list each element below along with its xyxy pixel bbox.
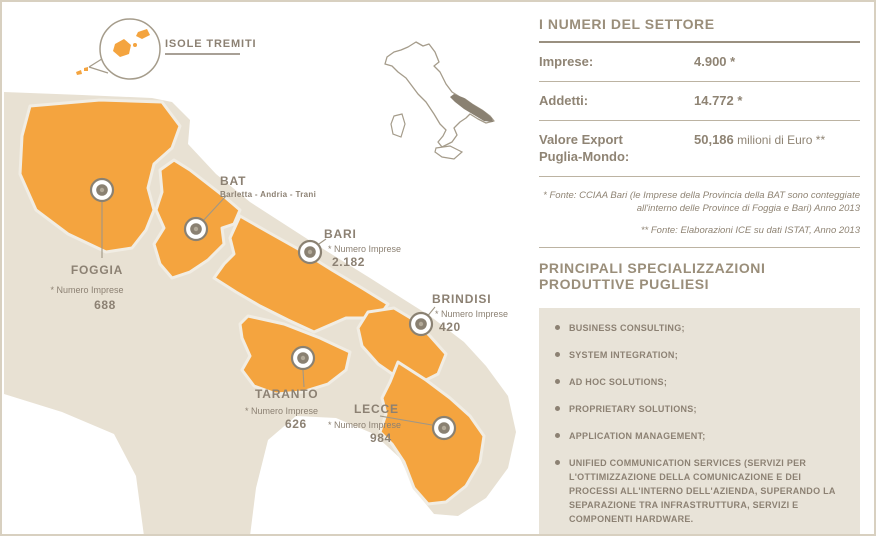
footnote-2: ** Fonte: Elaborazioni ICE su dati ISTAT…	[539, 224, 860, 237]
svg-text:* Numero Imprese: * Numero Imprese	[50, 285, 123, 295]
svg-text:BARI: BARI	[324, 227, 357, 241]
list-item: APPLICATION MANAGEMENT;	[553, 430, 844, 444]
svg-text:Barletta - Andria - Trani: Barletta - Andria - Trani	[220, 190, 316, 199]
svg-text:* Numero Imprese: * Numero Imprese	[328, 244, 401, 254]
svg-text:TARANTO: TARANTO	[255, 387, 318, 401]
italy-locator-map	[385, 42, 494, 159]
specializations-box: BUSINESS CONSULTING; SYSTEM INTEGRATION;…	[539, 308, 860, 536]
svg-text:* Numero Imprese: * Numero Imprese	[328, 420, 401, 430]
puglia-ict-infographic: ISOLE TREMITI	[0, 0, 876, 536]
bullet-icon	[555, 379, 560, 384]
stat-value: 14.772 *	[694, 93, 742, 108]
bullet-icon	[555, 406, 560, 411]
stat-row-export: Valore Export Puglia-Mondo: 50,186 milio…	[539, 121, 860, 176]
bullet-icon	[555, 460, 560, 465]
svg-text:LECCE: LECCE	[354, 402, 399, 416]
label-bari: BARI * Numero Imprese 2.182	[324, 227, 401, 269]
map-pin-lecce	[433, 417, 455, 439]
footnote-1: * Fonte: CCIAA Bari (le Imprese della Pr…	[539, 189, 860, 216]
list-item: BUSINESS CONSULTING;	[553, 322, 844, 336]
svg-text:688: 688	[94, 298, 116, 312]
label-brindisi: BRINDISI * Numero Imprese 420	[432, 292, 508, 334]
tremiti-specks	[76, 67, 88, 75]
bullet-icon	[555, 352, 560, 357]
bullet-icon	[555, 325, 560, 330]
svg-text:BRINDISI: BRINDISI	[432, 292, 491, 306]
stat-row-addetti: Addetti: 14.772 *	[539, 82, 860, 120]
stat-row-imprese: Imprese: 4.900 *	[539, 43, 860, 81]
svg-text:2.182: 2.182	[332, 255, 365, 269]
svg-text:BAT: BAT	[220, 174, 246, 188]
svg-text:420: 420	[439, 320, 461, 334]
stat-label: Valore Export Puglia-Mondo:	[539, 132, 694, 165]
list-item: AD HOC SOLUTIONS;	[553, 376, 844, 390]
map-pin-bari	[299, 241, 321, 263]
divider	[539, 176, 860, 177]
stat-value: 4.900 *	[694, 54, 735, 69]
map-pin-taranto	[292, 347, 314, 369]
svg-text:* Numero Imprese: * Numero Imprese	[245, 406, 318, 416]
stat-value: 50,186 milioni di Euro **	[694, 132, 825, 147]
map-pin-bat	[185, 218, 207, 240]
stat-label: Imprese:	[539, 54, 694, 70]
specializations-title: PRINCIPALI SPECIALIZZAZIONI PRODUTTIVE P…	[539, 260, 860, 294]
puglia-map: ISOLE TREMITI	[2, 2, 532, 536]
map-pin-foggia	[91, 179, 113, 201]
map-pin-brindisi	[410, 313, 432, 335]
stat-label: Addetti:	[539, 93, 694, 109]
bullet-icon	[555, 433, 560, 438]
svg-text:* Numero Imprese: * Numero Imprese	[435, 309, 508, 319]
list-item: PROPRIETARY SOLUTIONS;	[553, 403, 844, 417]
svg-text:626: 626	[285, 417, 307, 431]
label-bat: BAT Barletta - Andria - Trani	[220, 174, 316, 199]
isole-tremiti-callout: ISOLE TREMITI	[76, 19, 257, 79]
sector-numbers-panel: I NUMERI DEL SETTORE Imprese: 4.900 * Ad…	[539, 16, 860, 536]
list-item: SYSTEM INTEGRATION;	[553, 349, 844, 363]
svg-text:984: 984	[370, 431, 392, 445]
footnotes: * Fonte: CCIAA Bari (le Imprese della Pr…	[539, 189, 860, 238]
isole-tremiti-label: ISOLE TREMITI	[165, 38, 257, 50]
panel-title: I NUMERI DEL SETTORE	[539, 16, 860, 33]
list-item: UNIFIED COMMUNICATION SERVICES (SERVIZI …	[553, 457, 844, 527]
divider	[539, 247, 860, 248]
svg-text:FOGGIA: FOGGIA	[71, 263, 123, 277]
